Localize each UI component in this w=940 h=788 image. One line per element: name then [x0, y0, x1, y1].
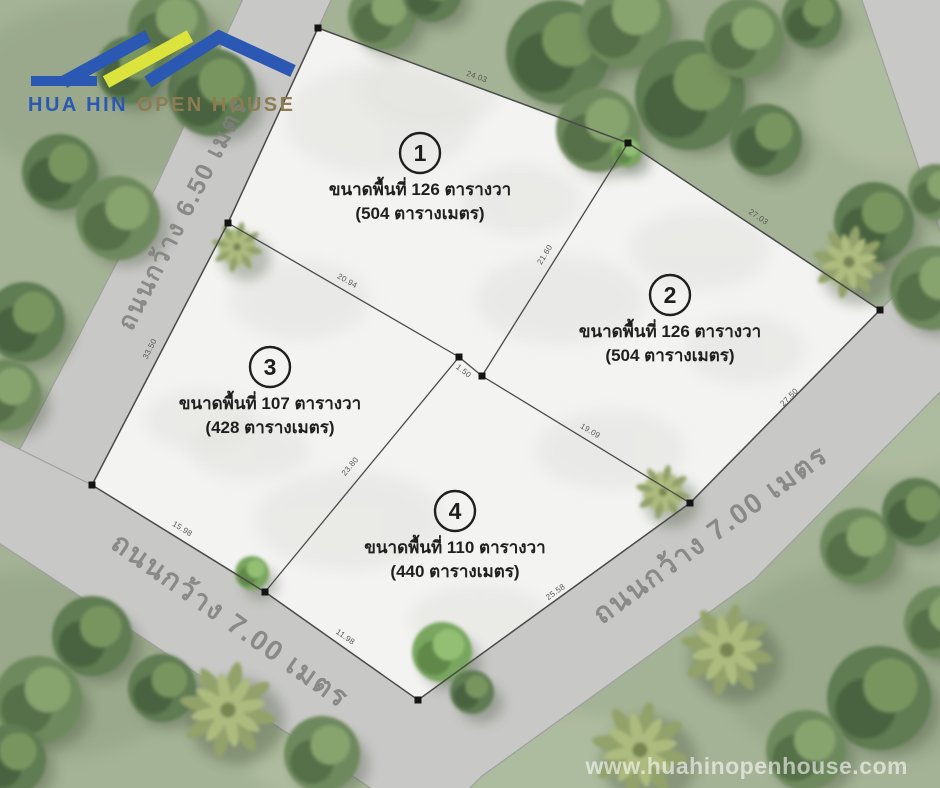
logo-roof-icon: [28, 24, 298, 92]
survey-marker: [687, 500, 694, 507]
plot-area-wah: ขนาดพื้นที่ 126 ตารางวา: [579, 318, 761, 341]
logo-text-primary: HUA HIN: [28, 94, 128, 116]
plot-area-wah: ขนาดพื้นที่ 110 ตารางวา: [364, 534, 545, 557]
logo-text: HUA HINOPEN HOUSE: [28, 94, 308, 117]
survey-marker: [225, 220, 232, 227]
survey-marker: [456, 354, 463, 361]
logo-text-secondary: OPEN HOUSE: [137, 94, 295, 116]
survey-marker: [315, 25, 322, 32]
plot-number: 2: [664, 282, 677, 308]
plot-number: 3: [264, 354, 277, 380]
plot-area-sqm: (428 ตารางเมตร): [205, 418, 334, 437]
website-watermark: www.huahinopenhouse.com: [586, 753, 908, 780]
site-plan-map: ถนนกว้าง 6.50 เมตรถนนกว้าง 7.00 เมตรถนนก…: [0, 0, 940, 788]
huahin-open-house-logo: HUA HINOPEN HOUSE: [28, 24, 308, 117]
survey-marker: [89, 482, 96, 489]
survey-marker: [479, 373, 486, 380]
plot-number: 1: [414, 140, 427, 166]
survey-marker: [877, 307, 884, 314]
plot-area-wah: ขนาดพื้นที่ 107 ตารางวา: [179, 390, 361, 413]
plot-area-wah: ขนาดพื้นที่ 126 ตารางวา: [329, 176, 511, 199]
plot-area-sqm: (440 ตารางเมตร): [390, 562, 519, 581]
plot-area-sqm: (504 ตารางเมตร): [355, 204, 484, 223]
site-plan-canvas: ถนนกว้าง 6.50 เมตรถนนกว้าง 7.00 เมตรถนนก…: [0, 0, 940, 788]
plot-number: 4: [449, 498, 462, 524]
plot-area-sqm: (504 ตารางเมตร): [605, 346, 734, 365]
survey-marker: [625, 140, 632, 147]
survey-marker: [415, 697, 422, 704]
survey-marker: [262, 589, 269, 596]
